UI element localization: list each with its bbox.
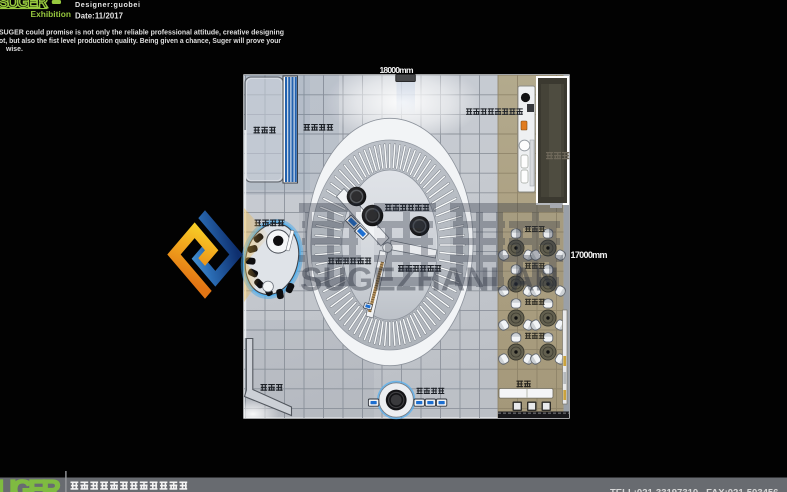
svg-text:Date:11/2017: Date:11/2017 [75, 12, 123, 21]
svg-text:18000mm: 18000mm [380, 65, 414, 75]
svg-text:UGER: UGER [0, 475, 61, 492]
svg-text:Exhibition: Exhibition [31, 9, 71, 19]
svg-text:ot, but also the fist level pr: ot, but also the fist level production q… [0, 38, 281, 45]
svg-text:SUGEZHANLAN: SUGEZHANLAN [300, 261, 559, 298]
svg-text:17000mm: 17000mm [571, 250, 608, 260]
svg-text:SUGER could promise is not onl: SUGER could promise is not only the reli… [0, 30, 284, 37]
svg-text:wise.: wise. [5, 46, 23, 53]
svg-text:TELL:021-33197310 FAX:021-50: TELL:021-33197310 FAX:021-503456 [610, 488, 778, 492]
svg-text:Designer:guobei: Designer:guobei [75, 0, 140, 9]
